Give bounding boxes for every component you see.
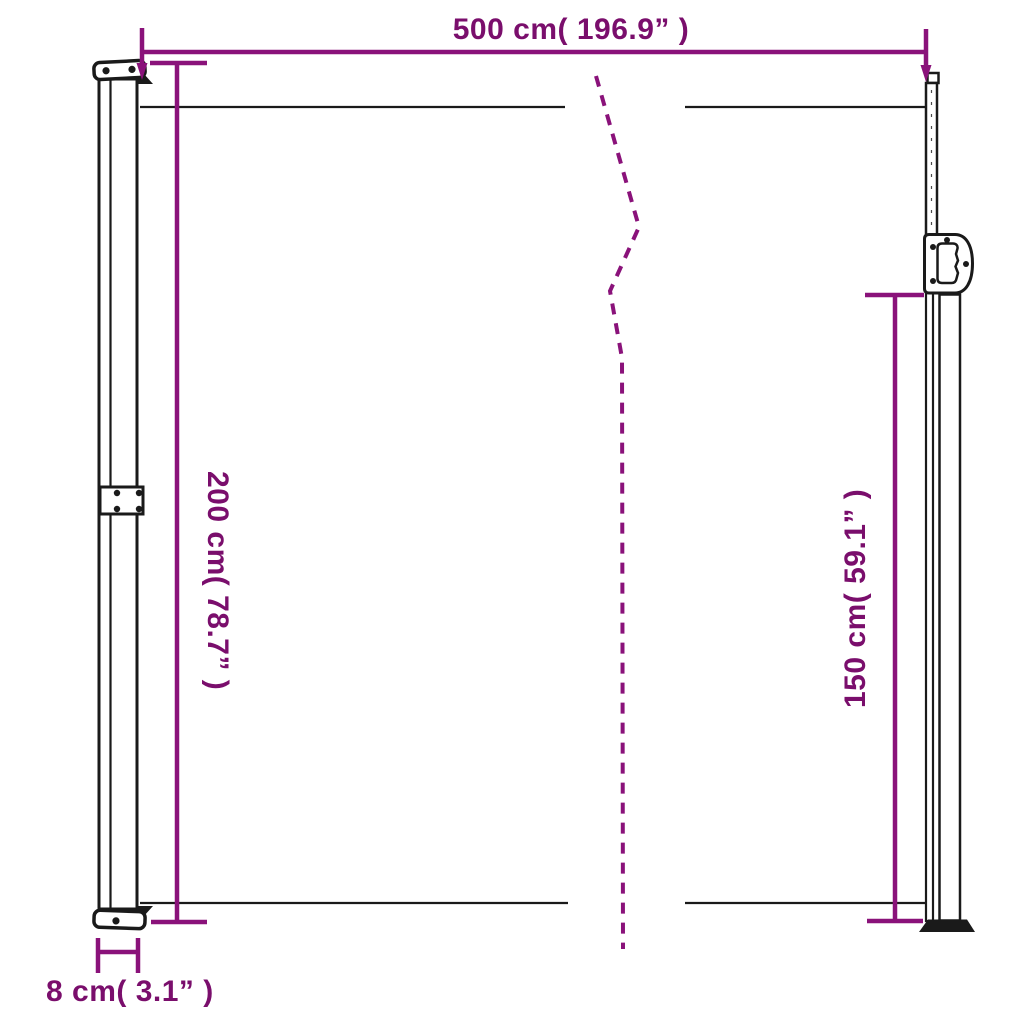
screw-dot xyxy=(114,490,120,496)
awning-fabric xyxy=(140,107,925,903)
cassette-bottom-cap xyxy=(94,910,146,929)
dimension-pole-height xyxy=(865,295,924,921)
screw-dot xyxy=(930,278,936,284)
pull-post-top-cap xyxy=(928,73,939,83)
width-dimension-label: 500 cm( 196.9” ) xyxy=(421,14,721,46)
screw-dot xyxy=(930,244,936,250)
pull-post-base-plate xyxy=(919,920,975,933)
depth-dimension-label: 8 cm( 3.1” ) xyxy=(46,976,214,1008)
fabric-break-line xyxy=(596,76,639,949)
handle-grip-cutout xyxy=(938,244,959,284)
left-cassette-post xyxy=(94,60,153,929)
pole-height-dimension-label: 150 cm( 59.1” ) xyxy=(840,489,872,708)
screw-dot xyxy=(136,506,142,512)
screw-dot xyxy=(963,261,969,267)
awning-dimension-diagram: 500 cm( 196.9” ) 200 cm( 78.7” ) 150 cm(… xyxy=(0,0,1024,1024)
height-dimension-label: 200 cm( 78.7” ) xyxy=(201,471,233,690)
screw-dot xyxy=(136,490,142,496)
pull-post-lower-strip xyxy=(926,293,933,921)
right-pull-post xyxy=(919,73,975,932)
pull-post-handle xyxy=(925,235,973,294)
dimension-depth xyxy=(98,938,138,973)
screw-dot xyxy=(114,506,120,512)
screw-dot xyxy=(944,237,950,243)
cassette-mid-bracket xyxy=(100,487,143,514)
dimension-height xyxy=(150,63,207,922)
pull-post-lower-tube xyxy=(940,295,961,921)
